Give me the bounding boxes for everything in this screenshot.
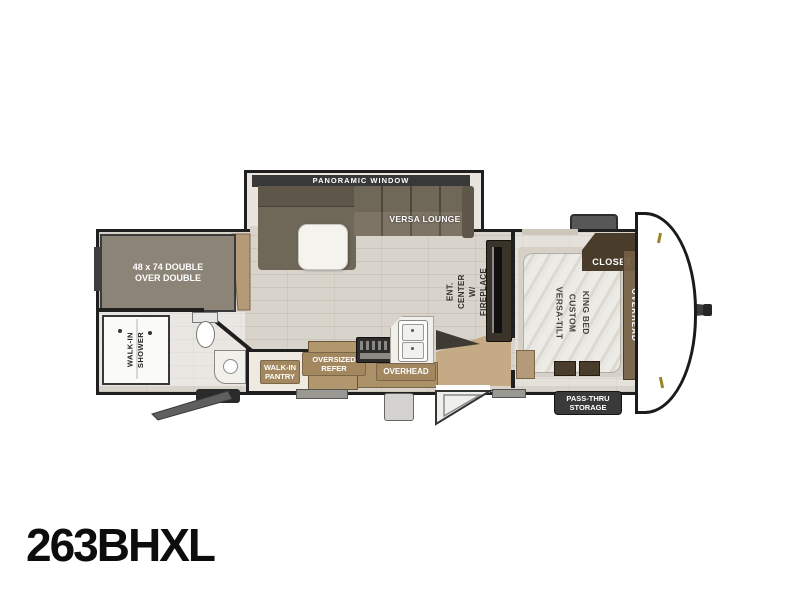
floorplan-canvas: PANORAMIC WINDOW VERSA LOUNGE 48 x 74 DO… (0, 0, 800, 600)
tv-screen (492, 247, 502, 333)
entry-step (436, 391, 490, 424)
king-bed: VERSA-TILT CUSTOM KING BED (523, 253, 621, 373)
gold-marker (657, 233, 662, 243)
bed-drawers (554, 361, 600, 376)
walk-in-pantry-label: WALK-IN PANTRY (260, 360, 300, 384)
gold-marker (659, 377, 664, 388)
ent-center-label: ENT. CENTER W/ FIREPLACE (445, 268, 490, 316)
faucet-icon (411, 347, 414, 350)
sink-basin (402, 342, 424, 359)
walk-in-shower: WALK-IN SHOWER (102, 315, 170, 385)
nightstand (516, 350, 535, 379)
stabilizer-bar (492, 389, 526, 398)
bedroom-wall-stub (511, 370, 515, 388)
overhead-cabinet-label: OVERHEAD (376, 363, 436, 381)
bunk-bed-label: 48 x 74 DOUBLE OVER DOUBLE (133, 262, 204, 285)
shower-head-icon (118, 329, 122, 333)
stabilizer-bar (296, 389, 348, 399)
faucet-icon (411, 329, 414, 332)
kitchen-sink (398, 320, 428, 362)
ent-center-cabinet (486, 240, 512, 342)
hitch-coupler (703, 304, 712, 316)
stove-burners (360, 341, 390, 350)
entry-door-opening (436, 385, 490, 393)
sink-basin (402, 324, 424, 341)
entry-step-inner (444, 395, 480, 416)
bunk-bed: 48 x 74 DOUBLE OVER DOUBLE (100, 234, 236, 312)
drawer (579, 361, 601, 376)
sofa-arm-right (462, 186, 474, 238)
vanity-sink (214, 350, 246, 384)
rear-window (94, 247, 102, 291)
king-bed-label: VERSA-TILT CUSTOM KING BED (552, 287, 592, 339)
water-heater (384, 393, 414, 421)
front-cap (635, 212, 697, 414)
versa-lounge-label: VERSA LOUNGE (378, 214, 472, 224)
bedroom-wall (511, 232, 515, 338)
stove (356, 337, 394, 363)
model-number: 263BHXL (26, 518, 214, 572)
bedroom-window (522, 229, 578, 235)
pass-thru-storage-label: PASS-THRU STORAGE (554, 391, 622, 415)
walk-in-shower-label: WALK-IN SHOWER (126, 332, 147, 368)
rear-step-box (196, 389, 240, 403)
lounge-table (298, 224, 348, 270)
sofa-back-row (354, 186, 472, 212)
bathroom-wall (98, 308, 204, 312)
sink-basin (223, 359, 238, 374)
drawer (554, 361, 576, 376)
toilet (196, 321, 215, 348)
shower-head-icon (148, 331, 152, 335)
ent-center-label-box: ENT. CENTER W/ FIREPLACE (450, 244, 484, 340)
sofa-chaise-back (258, 186, 356, 207)
stove-front (360, 353, 390, 359)
